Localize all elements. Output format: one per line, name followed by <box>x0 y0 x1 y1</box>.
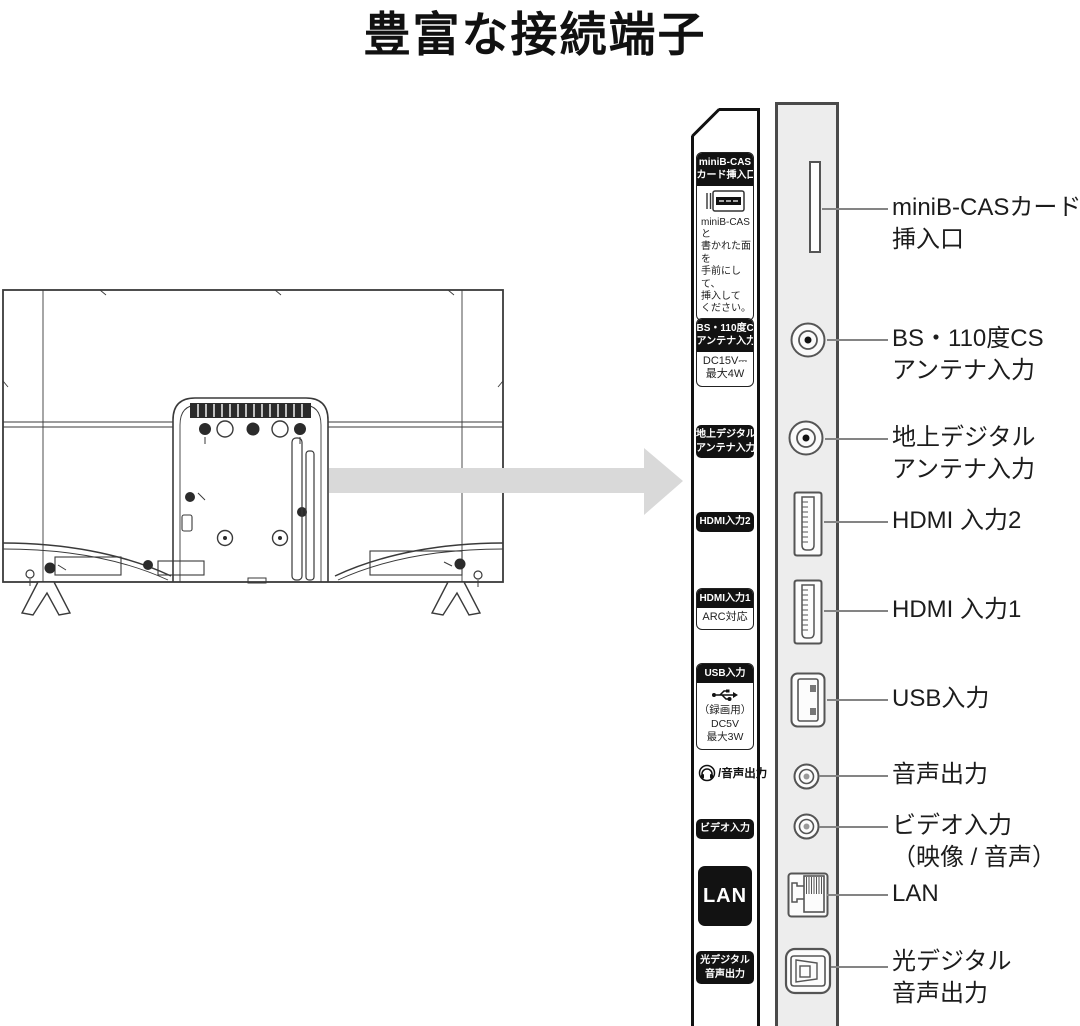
leader-line-bs <box>827 339 888 341</box>
bs-coax-connector <box>788 320 828 360</box>
lan-port <box>787 872 829 918</box>
page: 豊富な接続端子 <box>0 0 1080 1026</box>
headphones-icon <box>697 764 717 782</box>
terrestrial-badge: 地上デジタル アンテナ入力 <box>696 425 754 458</box>
leader-line-hdmi2 <box>824 521 888 523</box>
callout-audio: 音声出力 <box>892 759 988 791</box>
callout-minibcas: miniB-CASカード挿入口 <box>892 192 1080 256</box>
minibcas-slot <box>808 160 822 254</box>
callout-lan: LAN <box>892 878 939 910</box>
hdmi2-badge: HDMI入力2 <box>696 512 754 532</box>
bs-cs-badge: BS・110度CS アンテナ入力 <box>697 319 754 352</box>
leader-line-usb <box>827 699 888 701</box>
callout-usb: USB入力 <box>892 683 989 715</box>
minibcas-badge: miniB-CAS カード挿入口 <box>697 153 754 186</box>
hdmi1-badge: HDMI入力1 <box>697 589 754 609</box>
leader-line-lan <box>827 894 888 896</box>
arrow-icon <box>329 446 687 518</box>
video-in-badge: ビデオ入力 <box>696 819 754 839</box>
callout-hdmi1: HDMI 入力1 <box>892 594 1021 626</box>
usb-icon <box>711 687 739 703</box>
audio-out-label: /音声出力 <box>718 765 767 781</box>
leader-line-terrestrial <box>825 438 888 440</box>
leader-line-optical <box>831 966 888 968</box>
callout-optical: 光デジタル音声出力 <box>892 946 1012 1010</box>
hdmi2-port <box>793 491 823 557</box>
leader-line-audio <box>819 775 888 777</box>
callout-hdmi2: HDMI 入力2 <box>892 505 1021 537</box>
usb-port <box>790 672 826 728</box>
hdmi1-label-pod: HDMI入力1 ARC対応 <box>696 588 754 630</box>
bs-cs-spec: DC15V⎓ 最大4W <box>697 352 753 386</box>
usb-badge: USB入力 <box>697 664 754 684</box>
minib-cas-card-icon <box>704 189 746 213</box>
audio-out-jack <box>793 763 820 790</box>
leader-line-hdmi1 <box>824 610 888 612</box>
video-in-jack <box>793 813 820 840</box>
hdmi1-spec: ARC対応 <box>697 608 753 629</box>
page-title: 豊富な接続端子 <box>0 0 1070 65</box>
callout-bs: BS・110度CSアンテナ入力 <box>892 323 1044 387</box>
callout-video: ビデオ入力（映像 / 音声） <box>892 810 1056 874</box>
bs-cs-label-pod: BS・110度CS アンテナ入力 DC15V⎓ 最大4W <box>696 318 754 387</box>
audio-out-label-row: /音声出力 <box>697 764 767 782</box>
leader-line-video <box>819 826 888 828</box>
usb-label-pod: USB入力 （録画用） DC5V 最大3W <box>696 663 754 750</box>
terrestrial-coax-connector <box>786 418 826 458</box>
lan-badge: LAN <box>698 866 752 926</box>
optical-audio-port <box>784 947 832 995</box>
side-panel <box>775 102 839 1026</box>
port-label-strip: miniB-CAS カード挿入口 miniB-CASと 書かれた面を 手前にして… <box>691 108 760 1026</box>
leader-line-minibcas <box>822 208 888 210</box>
hdmi1-port <box>793 579 823 645</box>
minibcas-note: miniB-CASと 書かれた面を 手前にして、 挿入して ください。 <box>697 215 753 320</box>
minibcas-label-pod: miniB-CAS カード挿入口 miniB-CASと 書かれた面を 手前にして… <box>696 152 754 321</box>
callout-terrestrial: 地上デジタルアンテナ入力 <box>892 422 1036 486</box>
strip-chamfer <box>691 108 721 138</box>
usb-spec: （録画用） DC5V 最大3W <box>697 704 753 749</box>
optical-badge: 光デジタル 音声出力 <box>696 951 754 984</box>
